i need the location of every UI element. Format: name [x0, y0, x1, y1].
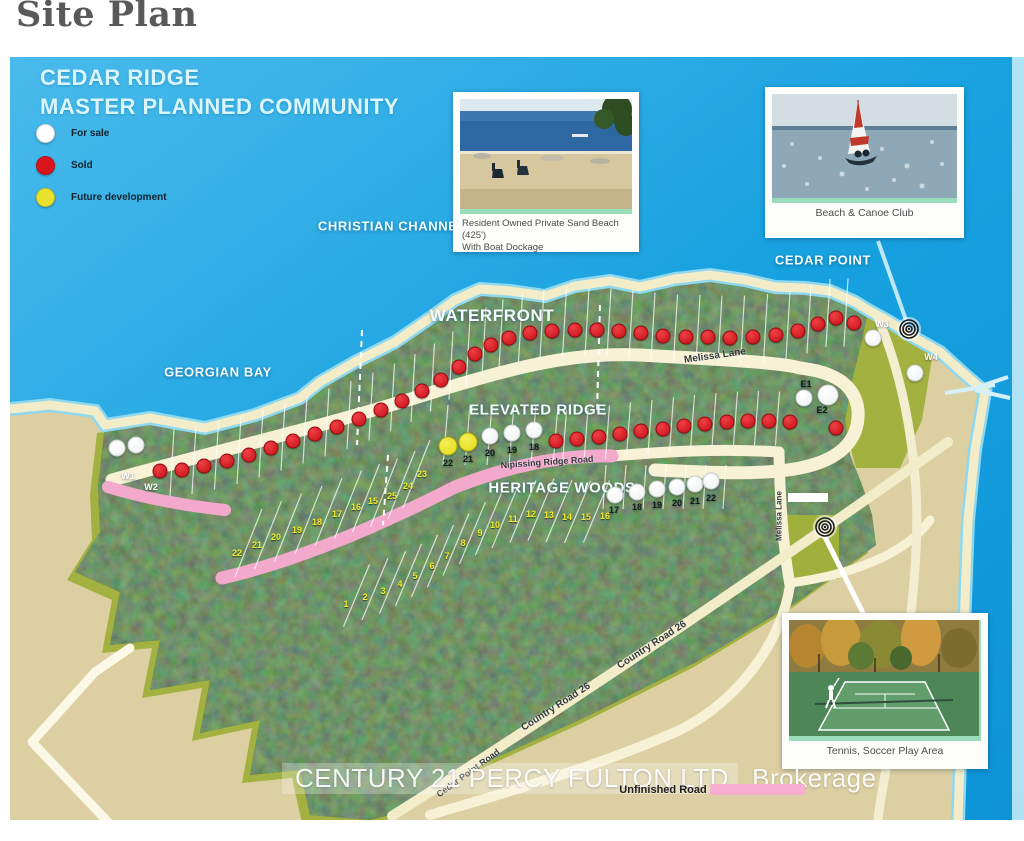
lot-marker-for-sale: [109, 440, 126, 457]
lot-marker-sold: [502, 331, 517, 346]
tennis-photo: [789, 620, 981, 741]
lot-marker-for-sale: [796, 390, 813, 407]
lot-marker-label: 17: [609, 505, 619, 515]
legend-swatch: [36, 188, 55, 207]
lot-marker-sold: [570, 432, 585, 447]
area-label: CEDAR POINT: [775, 253, 871, 268]
lot-marker-for-sale: [669, 479, 686, 496]
area-label: CHRISTIAN CHANNEL: [318, 219, 466, 234]
lot-marker-sold: [783, 415, 798, 430]
lot-number: 23: [417, 469, 427, 479]
lot-marker-sold: [374, 403, 389, 418]
lot-marker-sold: [720, 415, 735, 430]
lot-marker-sold: [568, 323, 583, 338]
lot-number: 22: [232, 548, 242, 558]
canoe-photo-card: Beach & Canoe Club: [765, 87, 964, 238]
lot-marker-sold: [352, 412, 367, 427]
beach-photo-caption: Resident Owned Private Sand Beach (425')…: [462, 218, 630, 254]
lot-number: 15: [368, 496, 378, 506]
lot-marker-label: 20: [672, 498, 682, 508]
lot-marker-sold: [545, 324, 560, 339]
lot-number: 8: [460, 538, 465, 548]
lot-marker-sold: [523, 326, 538, 341]
lot-number: 5: [412, 571, 417, 581]
lot-number: 21: [252, 540, 262, 550]
lot-marker-sold: [762, 414, 777, 429]
page-title: Site Plan: [16, 0, 197, 35]
lot-marker-label: 21: [690, 496, 700, 506]
legend-item-label: Future development: [71, 192, 167, 203]
lot-marker-label: W2: [144, 482, 158, 492]
lot-marker-sold: [811, 317, 826, 332]
lot-marker-sold: [723, 331, 738, 346]
lot-marker-sold: [175, 463, 190, 478]
lot-marker-for-sale: [482, 428, 499, 445]
lot-marker-sold: [656, 422, 671, 437]
lot-marker-label: 21: [463, 454, 473, 464]
lot-number: 18: [312, 517, 322, 527]
lot-marker-sold: [829, 421, 844, 436]
lot-number: 10: [490, 520, 500, 530]
lot-number: 15: [581, 512, 591, 522]
road-label: Country Road 26: [519, 681, 592, 734]
lot-marker-label: 19: [652, 500, 662, 510]
lot-marker-sold: [220, 454, 235, 469]
lot-marker-label: W1: [121, 471, 135, 481]
road-label: Melissa Lane: [683, 346, 746, 366]
site-plan-page: Site Plan: [0, 0, 1024, 841]
lot-number: 6: [429, 561, 434, 571]
lot-number: 13: [544, 510, 554, 520]
lot-number: 17: [332, 509, 342, 519]
lot-marker-sold: [679, 330, 694, 345]
lot-marker-for-sale: [607, 487, 624, 504]
lot-number: 4: [397, 579, 402, 589]
lot-marker-for-sale: [687, 476, 704, 493]
tennis-photo-card: Tennis, Soccer Play Area: [782, 613, 988, 769]
lot-marker-sold: [791, 324, 806, 339]
lot-marker-sold: [829, 311, 844, 326]
lot-number: 19: [292, 525, 302, 535]
lot-marker-label: 18: [632, 502, 642, 512]
lot-marker-label: 22: [443, 458, 453, 468]
tennis-photo-caption: Tennis, Soccer Play Area: [791, 745, 979, 757]
beach-photo-card: Resident Owned Private Sand Beach (425')…: [453, 92, 639, 252]
lot-marker-sold: [197, 459, 212, 474]
lot-number: 16: [600, 511, 610, 521]
legend-item: For sale: [36, 117, 167, 149]
lot-marker-sold: [242, 448, 257, 463]
spiral-marker-icon: [896, 316, 922, 342]
lot-marker-sold: [468, 347, 483, 362]
legend-swatch: [36, 124, 55, 143]
lot-marker-sold: [634, 424, 649, 439]
lot-marker-sold: [308, 427, 323, 442]
lot-number: 11: [508, 514, 518, 524]
area-label: WATERFRONT: [430, 306, 555, 326]
lot-number: 25: [387, 491, 397, 501]
lot-number: 20: [271, 532, 281, 542]
lot-marker-label: W4: [924, 352, 938, 362]
lot-number: 9: [477, 528, 482, 538]
lot-marker-for-sale: [128, 437, 145, 454]
lot-number: 3: [380, 586, 385, 596]
unfinished-road-label: Unfinished Road: [619, 784, 706, 796]
road-label: Nipissing Ridge Road: [500, 454, 593, 470]
road-label: Melissa Lane: [775, 491, 784, 541]
lot-marker-sold: [484, 338, 499, 353]
legend-item-label: Sold: [71, 160, 93, 171]
lot-marker-sold: [286, 434, 301, 449]
legend-item: Future development: [36, 181, 167, 213]
area-label: ELEVATED RIDGE: [469, 402, 607, 419]
beach-photo: [460, 99, 632, 214]
lot-marker-for-sale: [629, 484, 646, 501]
canoe-photo-caption: Beach & Canoe Club: [774, 207, 955, 219]
lot-marker-label: 19: [507, 445, 517, 455]
lot-number: 7: [444, 551, 449, 561]
lot-marker-label: 22: [706, 493, 716, 503]
lot-marker-future: [439, 437, 458, 456]
lot-marker-sold: [415, 384, 430, 399]
lot-number: 14: [562, 512, 572, 522]
lot-marker-sold: [701, 330, 716, 345]
lot-marker-for-sale: [649, 481, 666, 498]
canoe-photo: [772, 94, 957, 203]
area-label: GEORGIAN BAY: [164, 365, 272, 380]
lot-marker-for-sale: [818, 385, 839, 406]
lot-marker-sold: [264, 441, 279, 456]
lot-number: 12: [526, 509, 536, 519]
beach-caption-line1: Resident Owned Private Sand Beach (425'): [462, 218, 630, 242]
legend-swatch: [36, 156, 55, 175]
lot-marker-for-sale: [703, 473, 720, 490]
lot-marker-future: [459, 433, 478, 452]
lot-marker-sold: [592, 430, 607, 445]
lot-marker-sold: [677, 419, 692, 434]
legend-item-label: For sale: [71, 128, 109, 139]
lot-marker-label: W3: [875, 319, 889, 329]
lot-marker-sold: [746, 330, 761, 345]
lot-marker-sold: [769, 328, 784, 343]
lot-number: 1: [343, 599, 348, 609]
lot-marker-sold: [741, 414, 756, 429]
lot-marker-sold: [613, 427, 628, 442]
lot-number: 2: [362, 592, 367, 602]
lot-marker-sold: [434, 373, 449, 388]
spiral-marker-icon: [812, 514, 838, 540]
lot-marker-sold: [847, 316, 862, 331]
lot-marker-sold: [698, 417, 713, 432]
lot-marker-label: 20: [485, 448, 495, 458]
unfinished-road-swatch: [710, 784, 805, 795]
legend-item: Sold: [36, 149, 167, 181]
lot-marker-label: E1: [800, 379, 811, 389]
lot-number: 16: [351, 502, 361, 512]
map-heading: CEDAR RIDGE MASTER PLANNED COMMUNITY: [40, 63, 399, 121]
beach-caption-line2: With Boat Dockage: [462, 242, 630, 254]
lot-marker-sold: [153, 464, 168, 479]
lot-marker-sold: [330, 420, 345, 435]
lot-marker-for-sale: [865, 330, 882, 347]
lot-marker-sold: [395, 394, 410, 409]
lot-marker-for-sale: [504, 425, 521, 442]
lot-number: 24: [403, 481, 413, 491]
lot-marker-sold: [656, 329, 671, 344]
lot-marker-sold: [612, 324, 627, 339]
lot-marker-sold: [634, 326, 649, 341]
lot-marker-label: E2: [816, 405, 827, 415]
lot-marker-sold: [549, 434, 564, 449]
lot-marker-for-sale: [907, 365, 924, 382]
road-label: Country Road 26: [615, 619, 688, 672]
lot-marker-label: 18: [529, 442, 539, 452]
lot-marker-sold: [452, 360, 467, 375]
lot-marker-sold: [590, 323, 605, 338]
legend: For saleSoldFuture development: [36, 117, 167, 213]
lot-marker-for-sale: [526, 422, 543, 439]
site-plan-map: CEDAR RIDGE MASTER PLANNED COMMUNITY For…: [10, 57, 1024, 820]
map-heading-line1: CEDAR RIDGE: [40, 63, 399, 92]
